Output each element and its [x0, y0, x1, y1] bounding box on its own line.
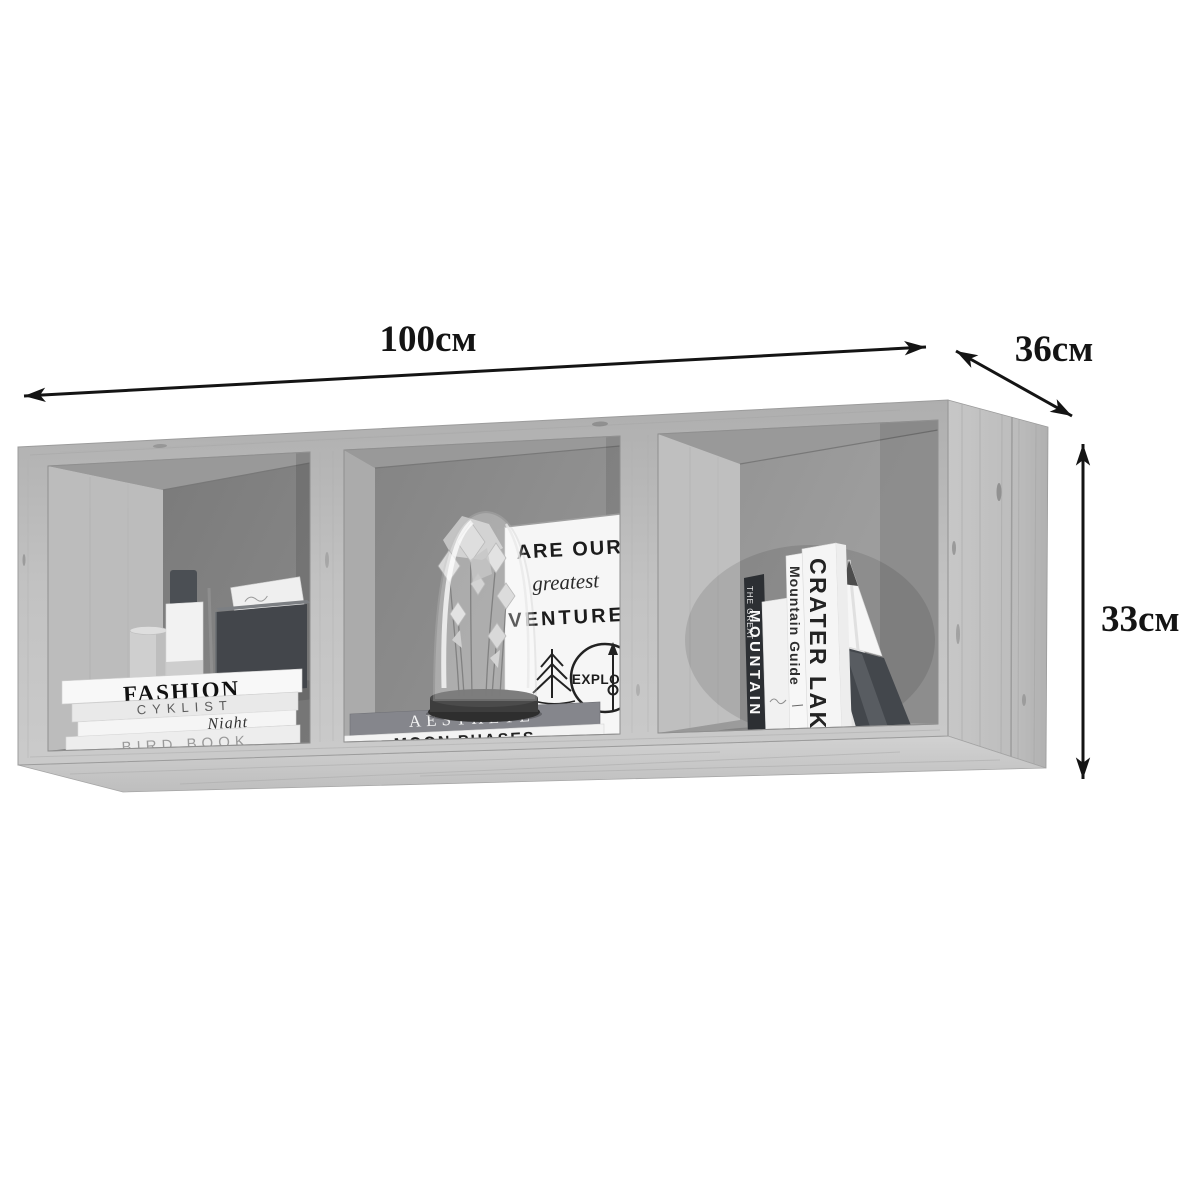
shelf-render-svg: FASHION CYKLIST Night BIRD BOOK ARE OUR … — [0, 0, 1200, 1200]
book-mountain-title: MOUNTAIN — [746, 610, 763, 718]
panel-seam — [1011, 417, 1012, 757]
compartment-right: THE GREAT MOUNTAIN Mountain Guide CRATER… — [658, 420, 938, 749]
shelf-right-side-panel — [948, 400, 1048, 768]
dimension-width: 100см — [24, 319, 926, 396]
width-dimension-label: 100см — [379, 319, 476, 360]
spray-cap — [170, 570, 197, 606]
dimension-depth: 36см — [956, 329, 1093, 416]
poster-line2: greatest — [532, 568, 601, 596]
height-dimension-label: 33см — [1101, 599, 1180, 640]
compartment-middle: ARE OUR greatest VENTURE EXPLO — [344, 436, 639, 761]
product-dimension-diagram: FASHION CYKLIST Night BIRD BOOK ARE OUR … — [0, 0, 1200, 1200]
book-mountain-guide-title: Mountain Guide — [787, 566, 803, 686]
interior-side-wall-middle — [344, 450, 375, 742]
stacked-books-left: FASHION CYKLIST Night BIRD BOOK — [62, 669, 302, 757]
dimension-height: 33см — [1083, 444, 1180, 779]
book-crater-lake-title: CRATER LAKE — [805, 558, 831, 749]
compartment-left: FASHION CYKLIST Night BIRD BOOK — [48, 452, 340, 757]
depth-dimension-label: 36см — [1015, 329, 1094, 370]
